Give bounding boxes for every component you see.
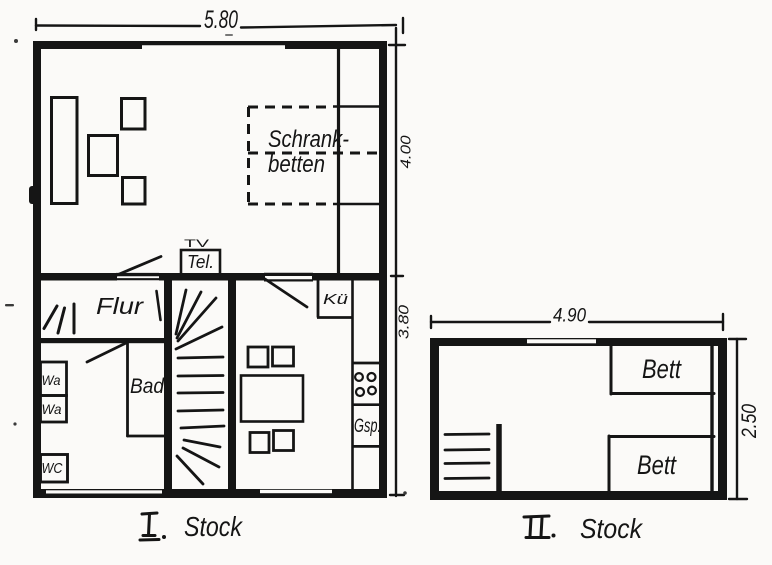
svg-text:Kü: Kü: [323, 291, 349, 308]
svg-text:Gsp.: Gsp.: [354, 416, 381, 437]
svg-text:Tel.: Tel.: [187, 252, 214, 272]
svg-text:2.50: 2.50: [738, 404, 761, 439]
svg-text:Bett: Bett: [637, 450, 677, 480]
svg-text:Bad: Bad: [130, 375, 165, 398]
svg-text:Stock: Stock: [580, 513, 644, 544]
svg-text:5.80: 5.80: [204, 6, 238, 34]
svg-text:Wa: Wa: [42, 401, 62, 417]
svg-text:Bett: Bett: [642, 354, 682, 384]
svg-text:TV: TV: [184, 238, 210, 250]
svg-text:WC: WC: [42, 460, 63, 477]
svg-text:Flur: Flur: [96, 293, 145, 319]
svg-text:Stock: Stock: [184, 511, 244, 542]
svg-text:4.00: 4.00: [398, 135, 415, 169]
svg-text:Wa: Wa: [42, 372, 61, 388]
svg-text:Schrank-: Schrank-: [268, 126, 349, 153]
svg-text:4.90: 4.90: [553, 306, 586, 327]
svg-text:3.80: 3.80: [396, 304, 413, 339]
svg-text:betten: betten: [268, 151, 325, 178]
